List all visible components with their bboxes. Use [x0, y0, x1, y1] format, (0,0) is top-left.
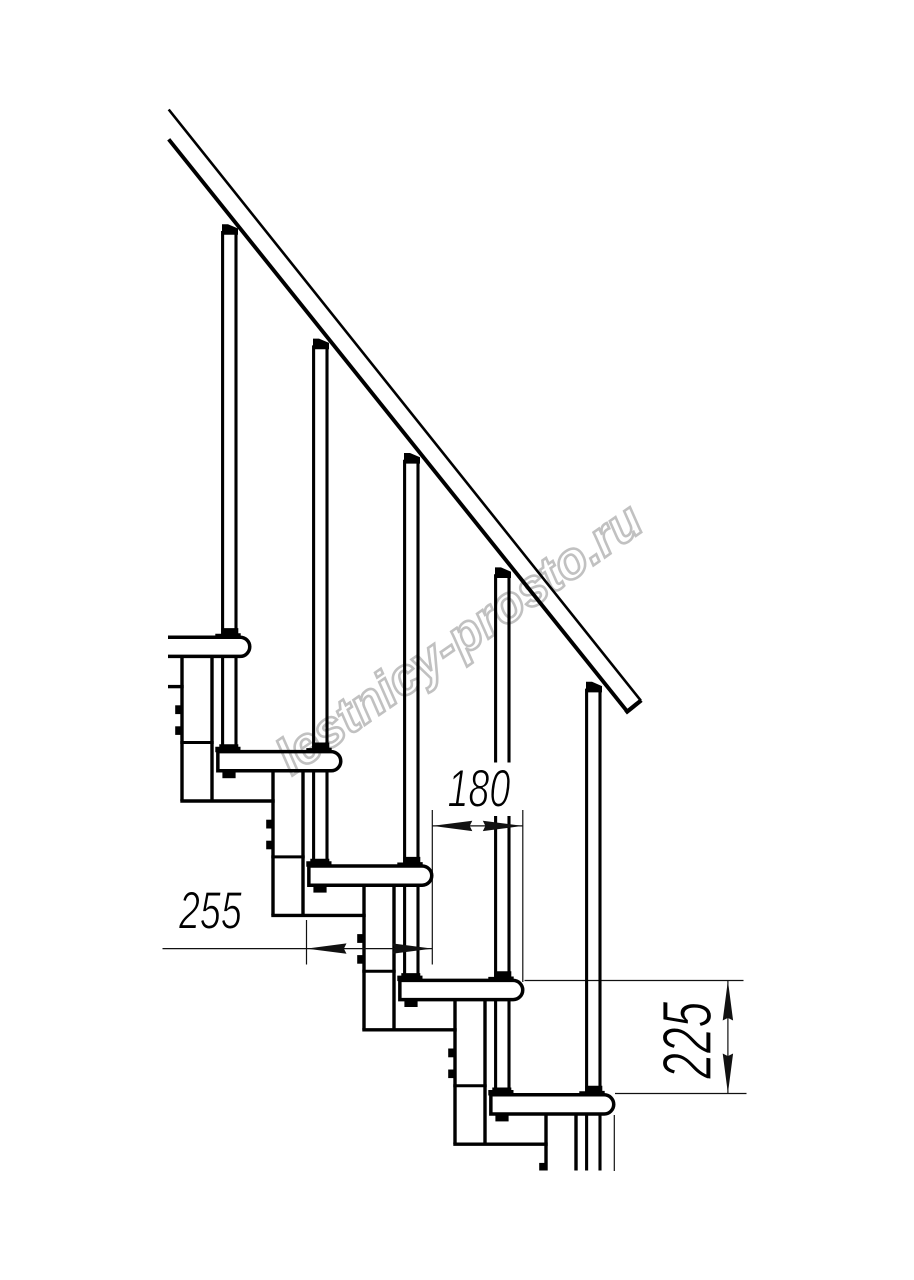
svg-text:225: 225: [647, 1001, 726, 1080]
svg-text:255: 255: [178, 880, 242, 940]
svg-text:180: 180: [448, 758, 511, 818]
